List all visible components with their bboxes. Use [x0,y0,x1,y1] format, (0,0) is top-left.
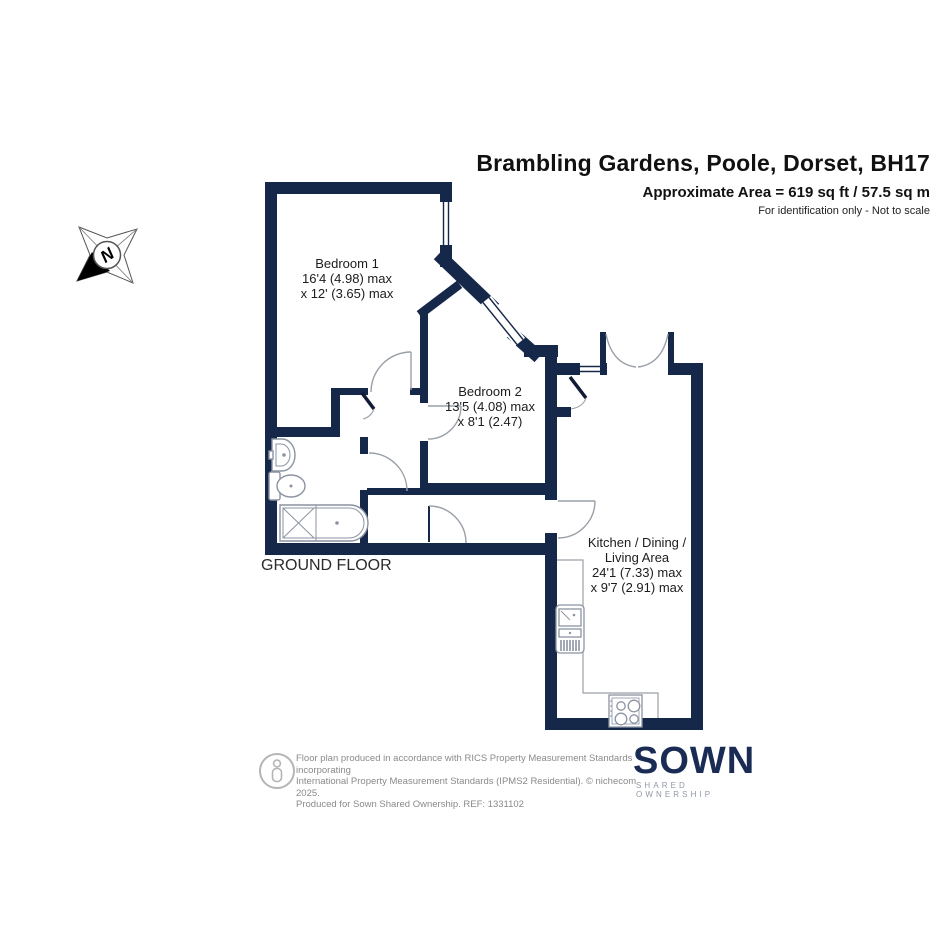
bedroom1-name: Bedroom 1 [315,256,379,271]
cupboard-door-hall [362,393,374,419]
footer-line-2: International Property Measurement Stand… [296,776,641,799]
window-kitchen [580,363,600,375]
person-badge-icon [257,751,297,791]
floor-label: GROUND FLOOR [261,557,392,575]
kitchen-label: Kitchen / Dining / Living Area 24'1 (7.3… [588,535,687,595]
cupboard-door-kitchen [570,377,586,409]
logo-tagline: SHARED OWNERSHIP [636,781,763,799]
bedroom2-dim2: x 8'1 (2.47) [458,414,523,429]
bathroom-fixtures [269,439,368,541]
bedroom1-dim1: 16'4 (4.98) max [302,271,392,286]
footer-line-1: Floor plan produced in accordance with R… [296,753,641,776]
window-bedroom1 [440,202,452,245]
footer-line-3: Produced for Sown Shared Ownership. REF:… [296,799,641,811]
kitchen-name1: Kitchen / Dining / [588,535,687,550]
sink-icon [269,439,295,471]
window-diagonal [483,298,523,345]
logo-wordmark: SOWN [633,742,763,780]
bedroom2-dim1: 13'5 (4.08) max [445,399,535,414]
bathtub-icon [280,505,368,541]
sown-logo: SOWN SHARED OWNERSHIP [633,742,763,799]
floorplan-page: Brambling Gardens, Poole, Dorset, BH17 A… [0,0,945,945]
bedroom2-label: Bedroom 2 13'5 (4.08) max x 8'1 (2.47) [445,384,535,429]
bedroom1-dim2: x 12' (3.65) max [301,286,394,301]
door-kitchen-entry [558,501,595,538]
kitchen-sink-icon [556,605,584,653]
door-hall-living [429,506,466,543]
kitchen-dim1: 24'1 (7.33) max [592,565,682,580]
kitchen-dim2: x 9'7 (2.91) max [591,580,684,595]
toilet-icon [269,472,305,500]
kitchen-name2: Living Area [605,550,670,565]
bedroom1-label: Bedroom 1 16'4 (4.98) max x 12' (3.65) m… [301,256,394,301]
compass-icon: N [77,227,137,283]
door-bathroom [369,453,407,491]
hob-icon [609,695,642,727]
bedroom2-name: Bedroom 2 [458,384,522,399]
door-arcs [362,334,668,543]
french-doors-kitchen [606,334,668,367]
footer-disclaimer: Floor plan produced in accordance with R… [296,753,641,811]
door-bedroom1 [371,352,411,392]
